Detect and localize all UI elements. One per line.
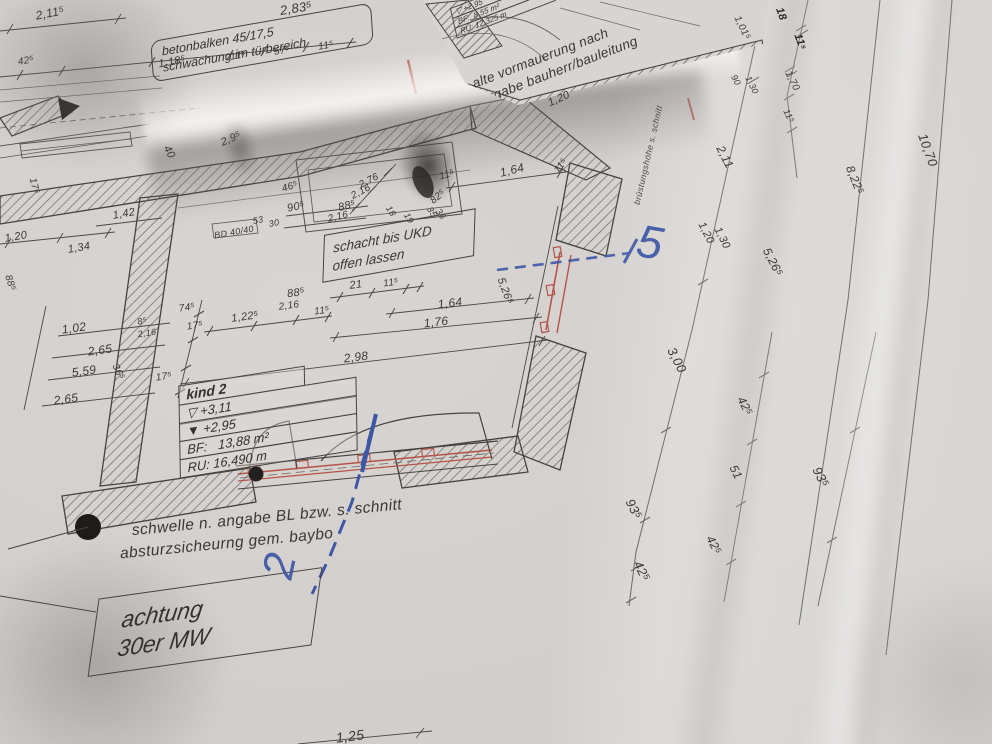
blueprint-photo: ▽ +2,95 BF: 8,55 m² RU: 12,325 m alte vo… xyxy=(0,0,992,744)
